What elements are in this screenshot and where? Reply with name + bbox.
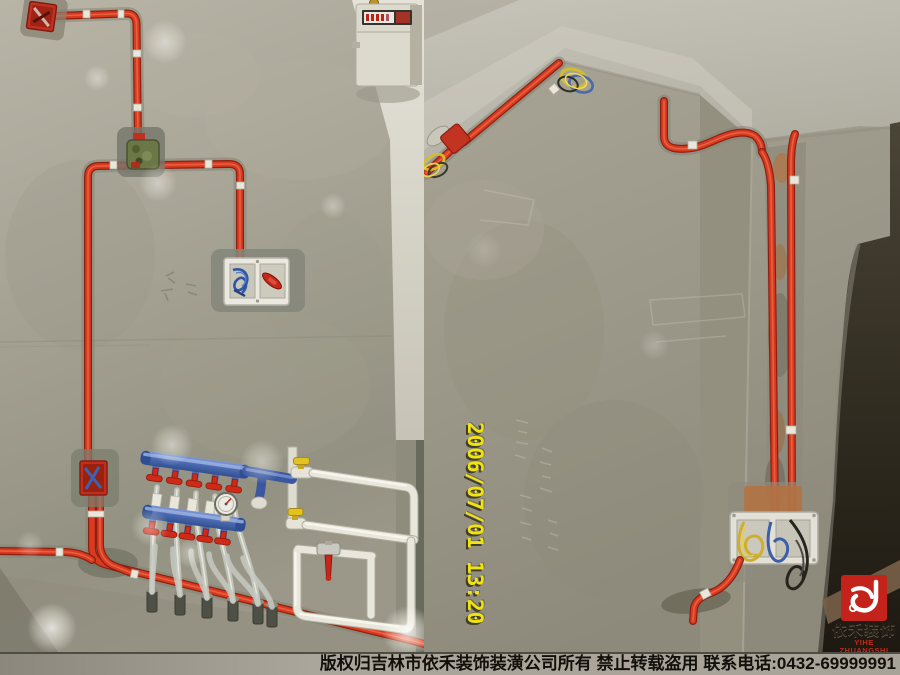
right-photo-scene — [424, 0, 900, 652]
watermark-company-name: 依禾装饰 — [830, 623, 898, 638]
yihe-logo-icon — [841, 575, 887, 621]
caption-bar: 版权归吉林市依禾装饰装潢公司所有 禁止转载盗用 联系电话:0432-699999… — [0, 652, 900, 675]
red-junction-box-top — [19, 0, 68, 41]
lens-flare — [466, 232, 502, 268]
wall-electrical-box — [71, 449, 119, 507]
lens-flare — [639, 330, 669, 360]
camera-timestamp: 2006/07/01 13:20 — [458, 422, 492, 622]
wall-junction-box — [728, 482, 826, 589]
photo-right-ceiling-corner — [424, 0, 900, 652]
copyright-text: 版权归吉林市依禾装饰装潢公司所有 禁止转载盗用 联系电话:0432-699999… — [320, 654, 896, 673]
left-photo-scene — [0, 0, 424, 652]
photo-left-wall-installation — [0, 0, 424, 652]
photo-collage: 2006/07/01 13:20 依禾装饰 YIHE ZHUANGSHI 版权归… — [0, 0, 900, 675]
power-outlet-box — [211, 249, 305, 312]
watermark-logo: 依禾装饰 YIHE ZHUANGSHI — [830, 575, 898, 654]
